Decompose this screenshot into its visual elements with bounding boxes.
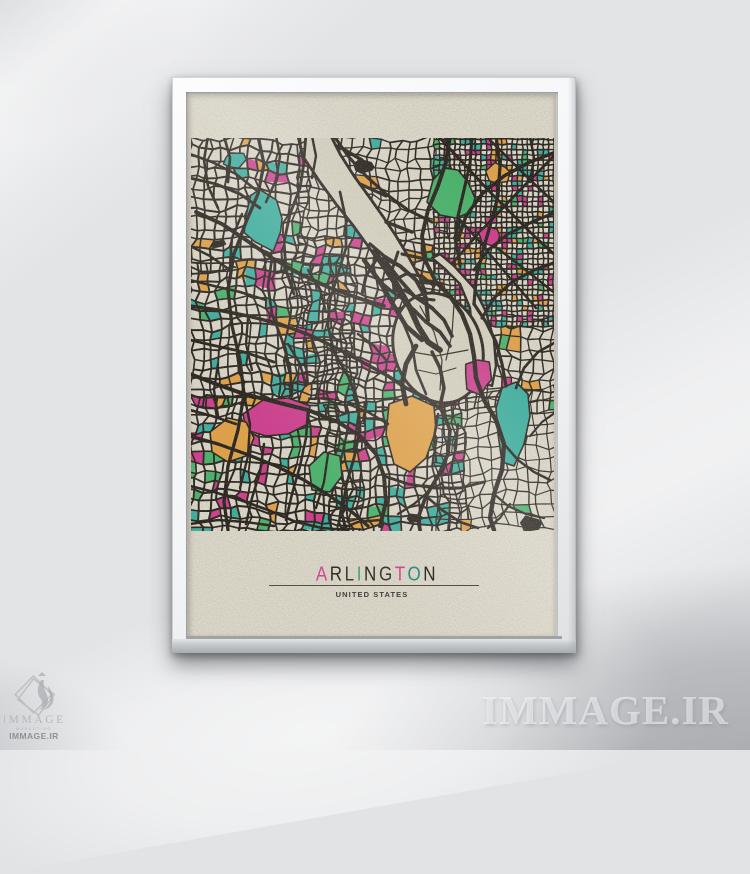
svg-text:IMMAGE.IR: IMMAGE.IR xyxy=(9,731,58,741)
svg-text:IMMAGE: IMMAGE xyxy=(4,714,66,726)
